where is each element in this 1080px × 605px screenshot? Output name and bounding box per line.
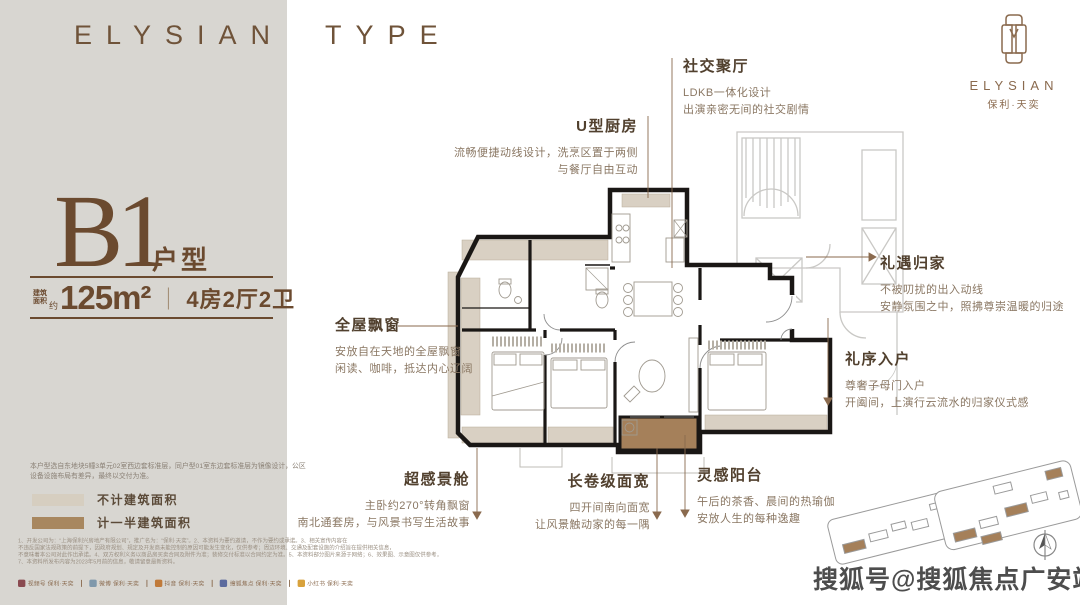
sohu-watermark: 搜狐号@搜狐焦点广安站 <box>813 560 1080 596</box>
project-logo: ELYSIAN 保利·天奕 <box>958 10 1070 111</box>
annotation-text: 出演亲密无间的社交剧情 <box>683 102 810 119</box>
sohu-focus-icon <box>220 580 227 587</box>
legend-item-half-area: 计一半建筑面积 <box>32 514 192 531</box>
legend-swatch-beige <box>32 494 84 506</box>
annotation-homecoming: 礼遇归家 不被叨扰的出入动线 安静氛围之中，照拂尊崇温暖的归途 <box>880 252 1064 315</box>
annotation-text: 不被叨扰的出入动线 <box>880 282 1064 299</box>
social-item: 视频号 保利·天奕 <box>18 579 74 587</box>
room-layout: 4房2厅2卫 <box>186 282 295 314</box>
site-plan <box>826 459 1080 565</box>
annotation-title: 社交聚厅 <box>683 55 810 76</box>
page: ELYSIAN TYPE <box>0 0 1080 605</box>
annotation-kitchen: U型厨房 流畅便捷动线设计，洗烹区置于两侧 与餐厅自由互动 <box>454 115 638 178</box>
exterior-walls <box>458 190 830 452</box>
xiaohongshu-icon <box>297 580 304 587</box>
annotation-balcony: 灵感阳台 午后的茶香、晨间的热瑜伽 安放人生的每种逸趣 <box>697 464 835 527</box>
disclaimer-fine-print: 1、开发公司为：“上海保利兴房地产有限公司”，推广名为：“保利·天奕”。2、本资… <box>18 538 299 566</box>
area-separator: ｜ <box>157 282 179 314</box>
social-item: 搜狐焦点 保利·天奕 <box>220 579 282 587</box>
annotation-bay-window: 全屋飘窗 安放自在天地的全屋飘窗 闲读、咖啡，抵达内心辽阔 <box>335 314 473 377</box>
annotation-text: 闲读、咖啡，抵达内心辽阔 <box>335 361 473 378</box>
door-swings <box>544 296 792 417</box>
annotation-social-hall: 社交聚厅 LDKB一体化设计 出演亲密无间的社交剧情 <box>683 55 810 118</box>
unit-note: 本户型选自东地块5幢3单元02室西边套标准层，同户型01室东边套标准层为镜像设计… <box>30 461 306 481</box>
brand-title: ELYSIAN TYPE <box>74 20 452 51</box>
logo-cn-name: 保利·天奕 <box>958 96 1070 111</box>
legend-label: 计一半建筑面积 <box>97 514 192 531</box>
annotation-title: 全屋飘窗 <box>335 314 473 335</box>
annotation-text: 南北通套房，与风景书写生活故事 <box>298 515 471 532</box>
annotation-text: 午后的茶香、晨间的热瑜伽 <box>697 494 835 511</box>
annotation-text: 让风景触动家的每一隅 <box>535 517 650 534</box>
social-platforms-row: 视频号 保利·天奕 丨 微博 保利·天奕 丨 抖音 保利·天奕 丨 搜狐焦点 保… <box>18 578 353 589</box>
unit-floor <box>458 190 830 452</box>
douyin-icon <box>155 580 162 587</box>
annotation-title: 礼序入户 <box>845 348 1029 369</box>
unit-area-row: 建筑面积 约 125m² ｜ 4房2厅2卫 <box>33 280 295 316</box>
annotation-frontage: 长卷级面宽 四开间南向面宽 让风景触动家的每一隅 <box>535 470 650 533</box>
annotation-text: LDKB一体化设计 <box>683 85 810 102</box>
annotation-text: 安放自在天地的全屋飘窗 <box>335 344 473 361</box>
elysian-emblem-icon <box>994 10 1034 68</box>
social-item: 抖音 保利·天奕 <box>155 579 205 587</box>
compass-icon <box>1034 530 1056 560</box>
logo-wordmark: ELYSIAN <box>958 78 1070 93</box>
balcony-area <box>620 417 698 450</box>
annotation-text: 与餐厅自由互动 <box>454 162 638 179</box>
bay-windows <box>448 194 827 443</box>
unit-code-suffix: 户型 <box>152 240 210 277</box>
annotation-text: 四开间南向面宽 <box>535 500 650 517</box>
unit-code: B1 <box>54 180 161 284</box>
legend-swatch-brown <box>32 517 84 529</box>
annotation-text: 尊奢子母门入户 <box>845 378 1029 395</box>
annotation-title: 超感景舱 <box>298 468 471 489</box>
legend-item-excluded-area: 不计建筑面积 <box>32 491 178 508</box>
annotation-master-suite: 超感景舱 主卧约270°转角飘窗 南北通套房，与风景书写生活故事 <box>298 468 471 531</box>
social-item: 微博 保利·天奕 <box>89 579 139 587</box>
divider-rule-top <box>30 276 273 278</box>
annotation-title: 灵感阳台 <box>697 464 835 485</box>
divider-rule-bottom <box>30 317 273 319</box>
annotation-text: 开阖间，上演行云流水的归家仪式感 <box>845 395 1029 412</box>
weibo-icon <box>89 580 96 587</box>
social-item: 小红书 保利·天奕 <box>297 579 353 587</box>
interior-walls <box>462 240 830 445</box>
annotation-entry: 礼序入户 尊奢子母门入户 开阖间，上演行云流水的归家仪式感 <box>845 348 1029 411</box>
area-prefix-label: 建筑面积 <box>33 290 47 306</box>
annotation-title: 长卷级面宽 <box>535 470 650 491</box>
annotation-text: 主卧约270°转角飘窗 <box>298 498 471 515</box>
video-channel-icon <box>18 580 25 587</box>
annotation-title: U型厨房 <box>454 115 638 136</box>
area-approx-label: 约 <box>49 299 58 316</box>
annotation-text: 安放人生的每种逸趣 <box>697 511 835 528</box>
area-value: 125m² <box>60 279 150 317</box>
annotation-title: 礼遇归家 <box>880 252 1064 273</box>
annotation-text: 安静氛围之中，照拂尊崇温暖的归途 <box>880 299 1064 316</box>
legend-label: 不计建筑面积 <box>97 491 178 508</box>
annotation-text: 流畅便捷动线设计，洗烹区置于两侧 <box>454 145 638 162</box>
furniture <box>492 214 766 435</box>
